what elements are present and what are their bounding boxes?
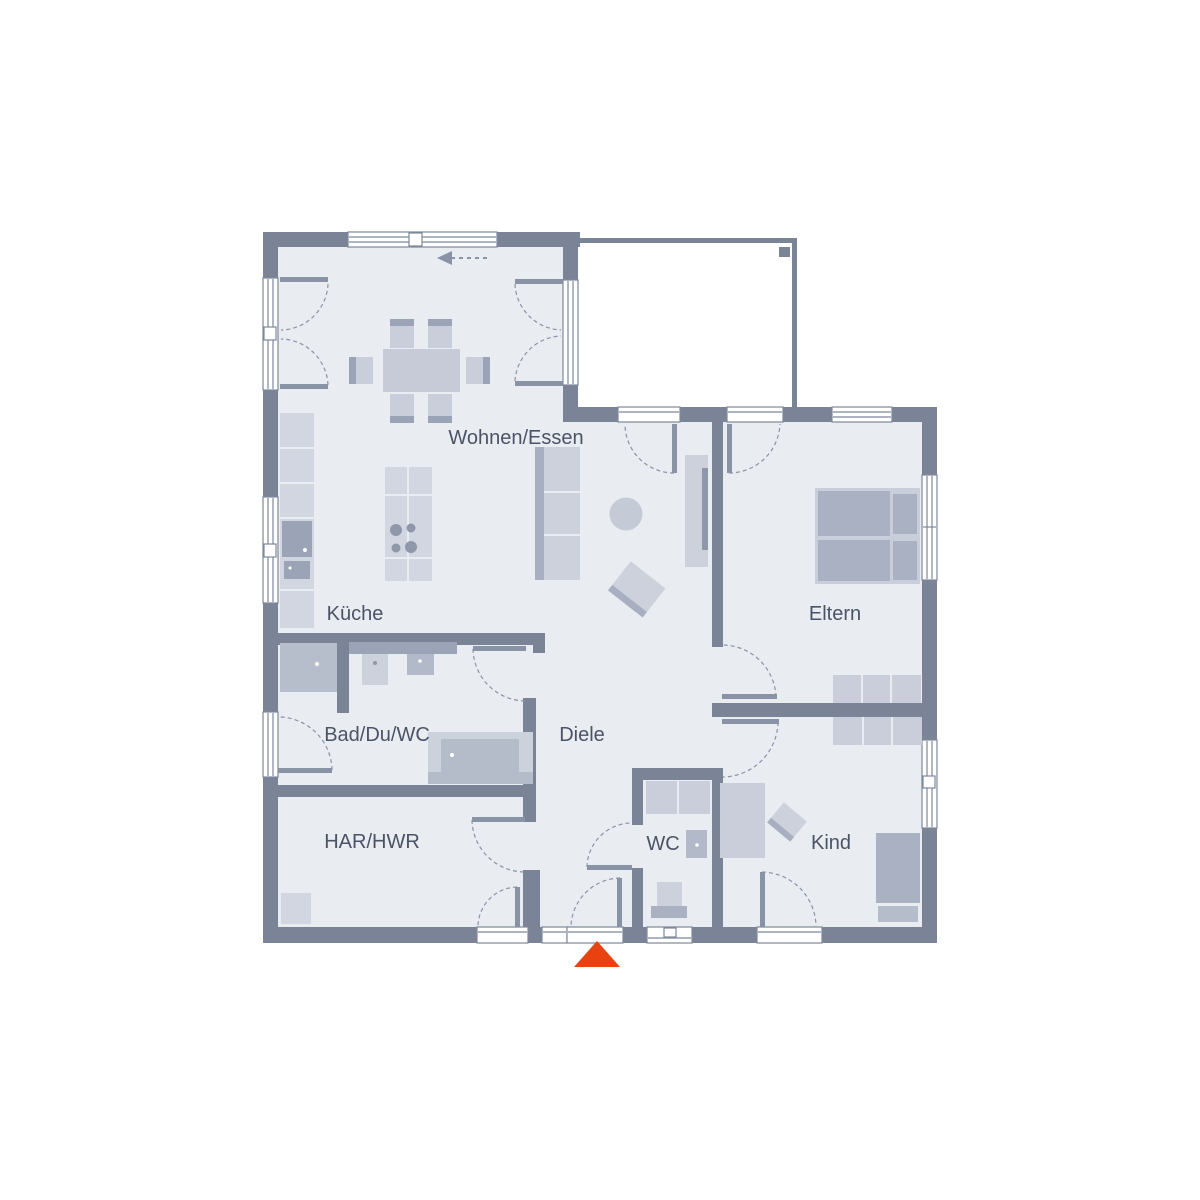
door-leaf [727,424,732,473]
washer [281,893,311,924]
wall-segment [263,927,477,943]
wall-segment [497,232,580,247]
pillow [893,494,917,534]
wall-wc-top [632,768,723,780]
window-handle-icon [409,233,422,246]
door-leaf [472,817,525,822]
vanity-counter [349,642,457,654]
window-handle-icon [664,928,676,937]
pillow [893,541,917,580]
door-leaf [722,719,779,724]
terrace-area [578,238,797,407]
wall-segment [578,407,618,422]
window-kind-right [922,740,937,828]
vanity-sink [407,654,434,675]
wall-bad-har [278,785,536,797]
terrace-wall-right [792,238,797,407]
room-label-kind: Kind [811,832,851,854]
room-label-eltern: Eltern [809,603,861,625]
wall-segment [528,927,542,943]
wall-shower-stub [337,633,349,713]
wall-segment [533,633,545,653]
shower [280,643,337,692]
toilet [657,882,682,906]
terrace-wall-top [578,238,797,243]
wall-wc-left [632,780,643,825]
room-label-diele: Diele [559,724,605,746]
window-eltern-top [832,407,892,422]
downpipe-marker-icon [779,247,790,257]
door-leaf [617,878,622,927]
door-leaf [515,887,520,927]
wall-segment [783,407,832,422]
room-label-wohnen-essen: Wohnen/Essen [448,427,583,449]
kitchen-sink [282,521,312,557]
room-label-wc: WC [646,833,679,855]
wardrobe-eltern [833,675,921,703]
floorplan-drawing: Wohnen/Essen Küche Eltern Bad/Du/WC Diel… [0,0,1200,1200]
door-leaf [280,277,328,282]
door-leaf [278,768,332,773]
wall-segment [563,247,578,280]
room-label-kueche: Küche [327,603,384,625]
sliding-door [348,232,497,247]
wall-segment [692,927,757,943]
door-leaf [515,279,563,284]
door-leaf [515,381,563,386]
entrance-sidelight [542,927,567,943]
door-leaf [280,384,328,389]
window-kueche [263,497,278,603]
furniture-har [281,893,311,924]
single-bed [876,833,920,903]
window-handle-icon [923,776,935,788]
window-handle-icon [264,544,276,557]
wall-segment [563,385,578,422]
wall-eltern-kind [712,703,937,717]
wall-segment [623,927,647,943]
window-handle-icon [264,327,276,340]
pillow [878,906,918,922]
wall-segment [822,927,937,943]
tv-icon [702,468,708,550]
door-leaf [587,865,632,870]
wardrobe-kind [833,717,922,745]
wall-wc-left [632,868,643,927]
door-leaf [672,424,677,473]
kitchen-appliance [284,561,310,579]
window-eltern-right [922,475,937,580]
desk [720,783,765,858]
wall-segment [922,407,937,475]
wall-segment [263,232,348,247]
door-leaf [473,646,526,651]
wall-segment [922,828,937,943]
terrace-floor [578,243,792,407]
window-wc [647,927,692,943]
wall-segment [680,407,727,422]
vanity-sink [362,654,388,685]
dining-table [383,349,460,392]
door-leaf [760,872,765,927]
room-label-har: HAR/HWR [324,831,420,853]
entrance-marker-icon [574,941,620,967]
kitchen-counter [280,413,314,628]
door-leaf [722,694,777,699]
floorplan-page: Wohnen/Essen Küche Eltern Bad/Du/WC Diel… [0,0,1200,1200]
coffee-table [610,498,643,531]
wall-har-entry [523,870,540,927]
wall-wohnen-eltern [712,422,723,647]
room-label-bad: Bad/Du/WC [324,724,430,746]
